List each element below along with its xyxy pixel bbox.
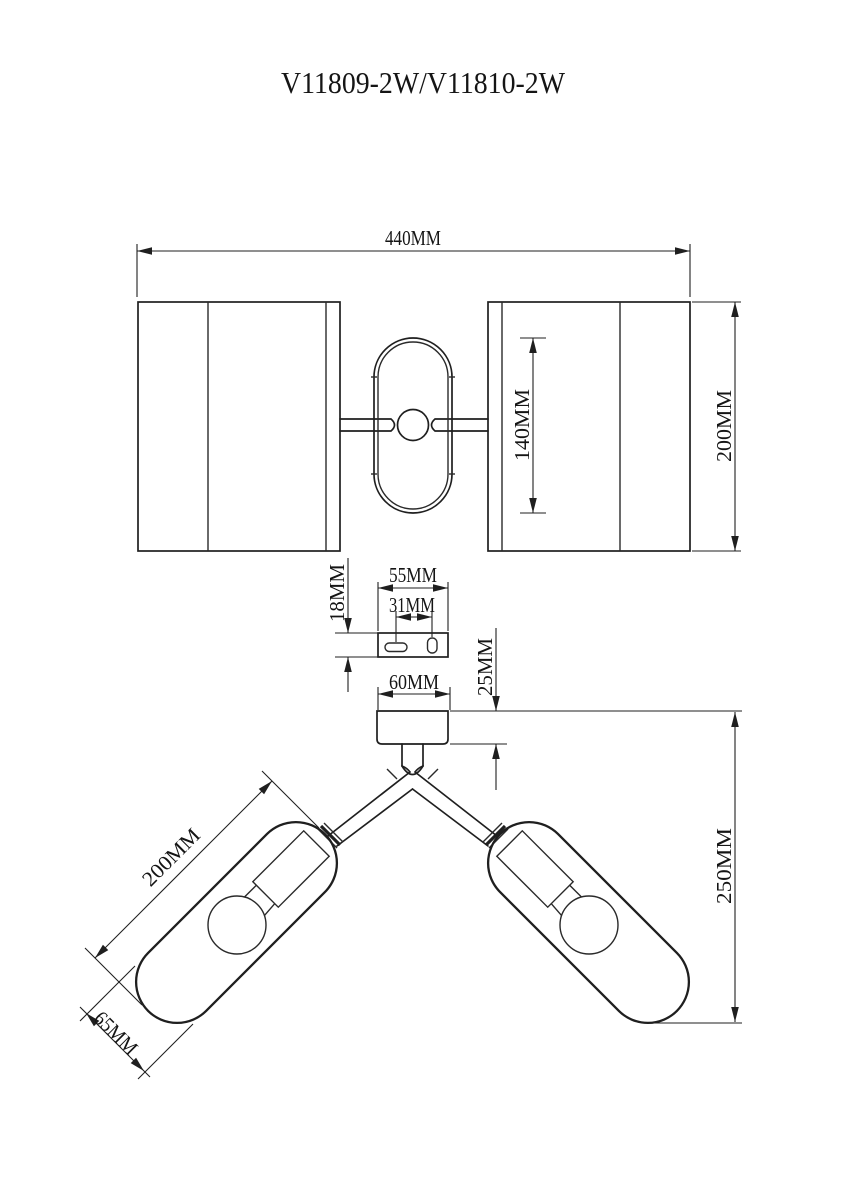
left-bulb xyxy=(208,885,275,954)
dim-shade-height: 200MM xyxy=(692,302,741,551)
mounting-arm-front xyxy=(340,410,488,441)
right-collar xyxy=(483,823,508,848)
dim-label-center-body-height: 140MM xyxy=(510,389,534,461)
dim-hole-spacing: 31MM xyxy=(389,593,435,642)
dim-shade-length: 200MM xyxy=(85,771,319,1005)
bracket-round-hole xyxy=(428,638,438,653)
dim-label-shade-diameter: 65MM xyxy=(89,1006,143,1060)
dim-label-shade-height: 200MM xyxy=(712,390,736,462)
right-bulb xyxy=(551,885,618,954)
dim-label-shade-length: 200MM xyxy=(137,823,205,891)
dim-label-canopy-width: 60MM xyxy=(389,670,439,694)
dim-total-projection: 250MM xyxy=(646,712,742,1023)
left-socket xyxy=(253,831,329,907)
dim-label-total-projection: 250MM xyxy=(712,828,736,904)
left-glass-shade xyxy=(119,805,354,1040)
stem-and-junction xyxy=(328,744,497,846)
dim-label-canopy-height: 25MM xyxy=(473,638,497,696)
technical-drawing-canvas: V11809-2W/V11810-2W xyxy=(0,0,848,1200)
hub-joint xyxy=(398,410,429,441)
dim-overall-width: 440MM xyxy=(137,226,690,297)
canopy xyxy=(377,711,448,744)
drawing-title: V11809-2W/V11810-2W xyxy=(281,65,566,100)
dim-canopy-height: 25MM xyxy=(450,628,742,790)
bracket-slot-hole xyxy=(385,643,407,652)
dim-label-overall-width: 440MM xyxy=(385,226,441,250)
dim-canopy-width: 60MM xyxy=(378,670,450,710)
dim-label-plate-width: 55MM xyxy=(389,563,437,587)
dim-center-body-height: 140MM xyxy=(510,338,546,513)
drawing-page: V11809-2W/V11810-2W xyxy=(0,0,848,1200)
dim-plate-height: 18MM xyxy=(325,558,380,692)
left-shade-outline xyxy=(138,302,340,551)
dim-label-plate-height: 18MM xyxy=(325,564,349,622)
side-view: 60MM 25MM 250MM 200MM xyxy=(80,628,742,1079)
front-view: 440MM 200MM 140MM xyxy=(137,226,741,551)
right-glass-shade xyxy=(471,805,706,1040)
glass-capsule-front xyxy=(371,338,455,513)
dim-label-hole-spacing: 31MM xyxy=(389,593,435,617)
